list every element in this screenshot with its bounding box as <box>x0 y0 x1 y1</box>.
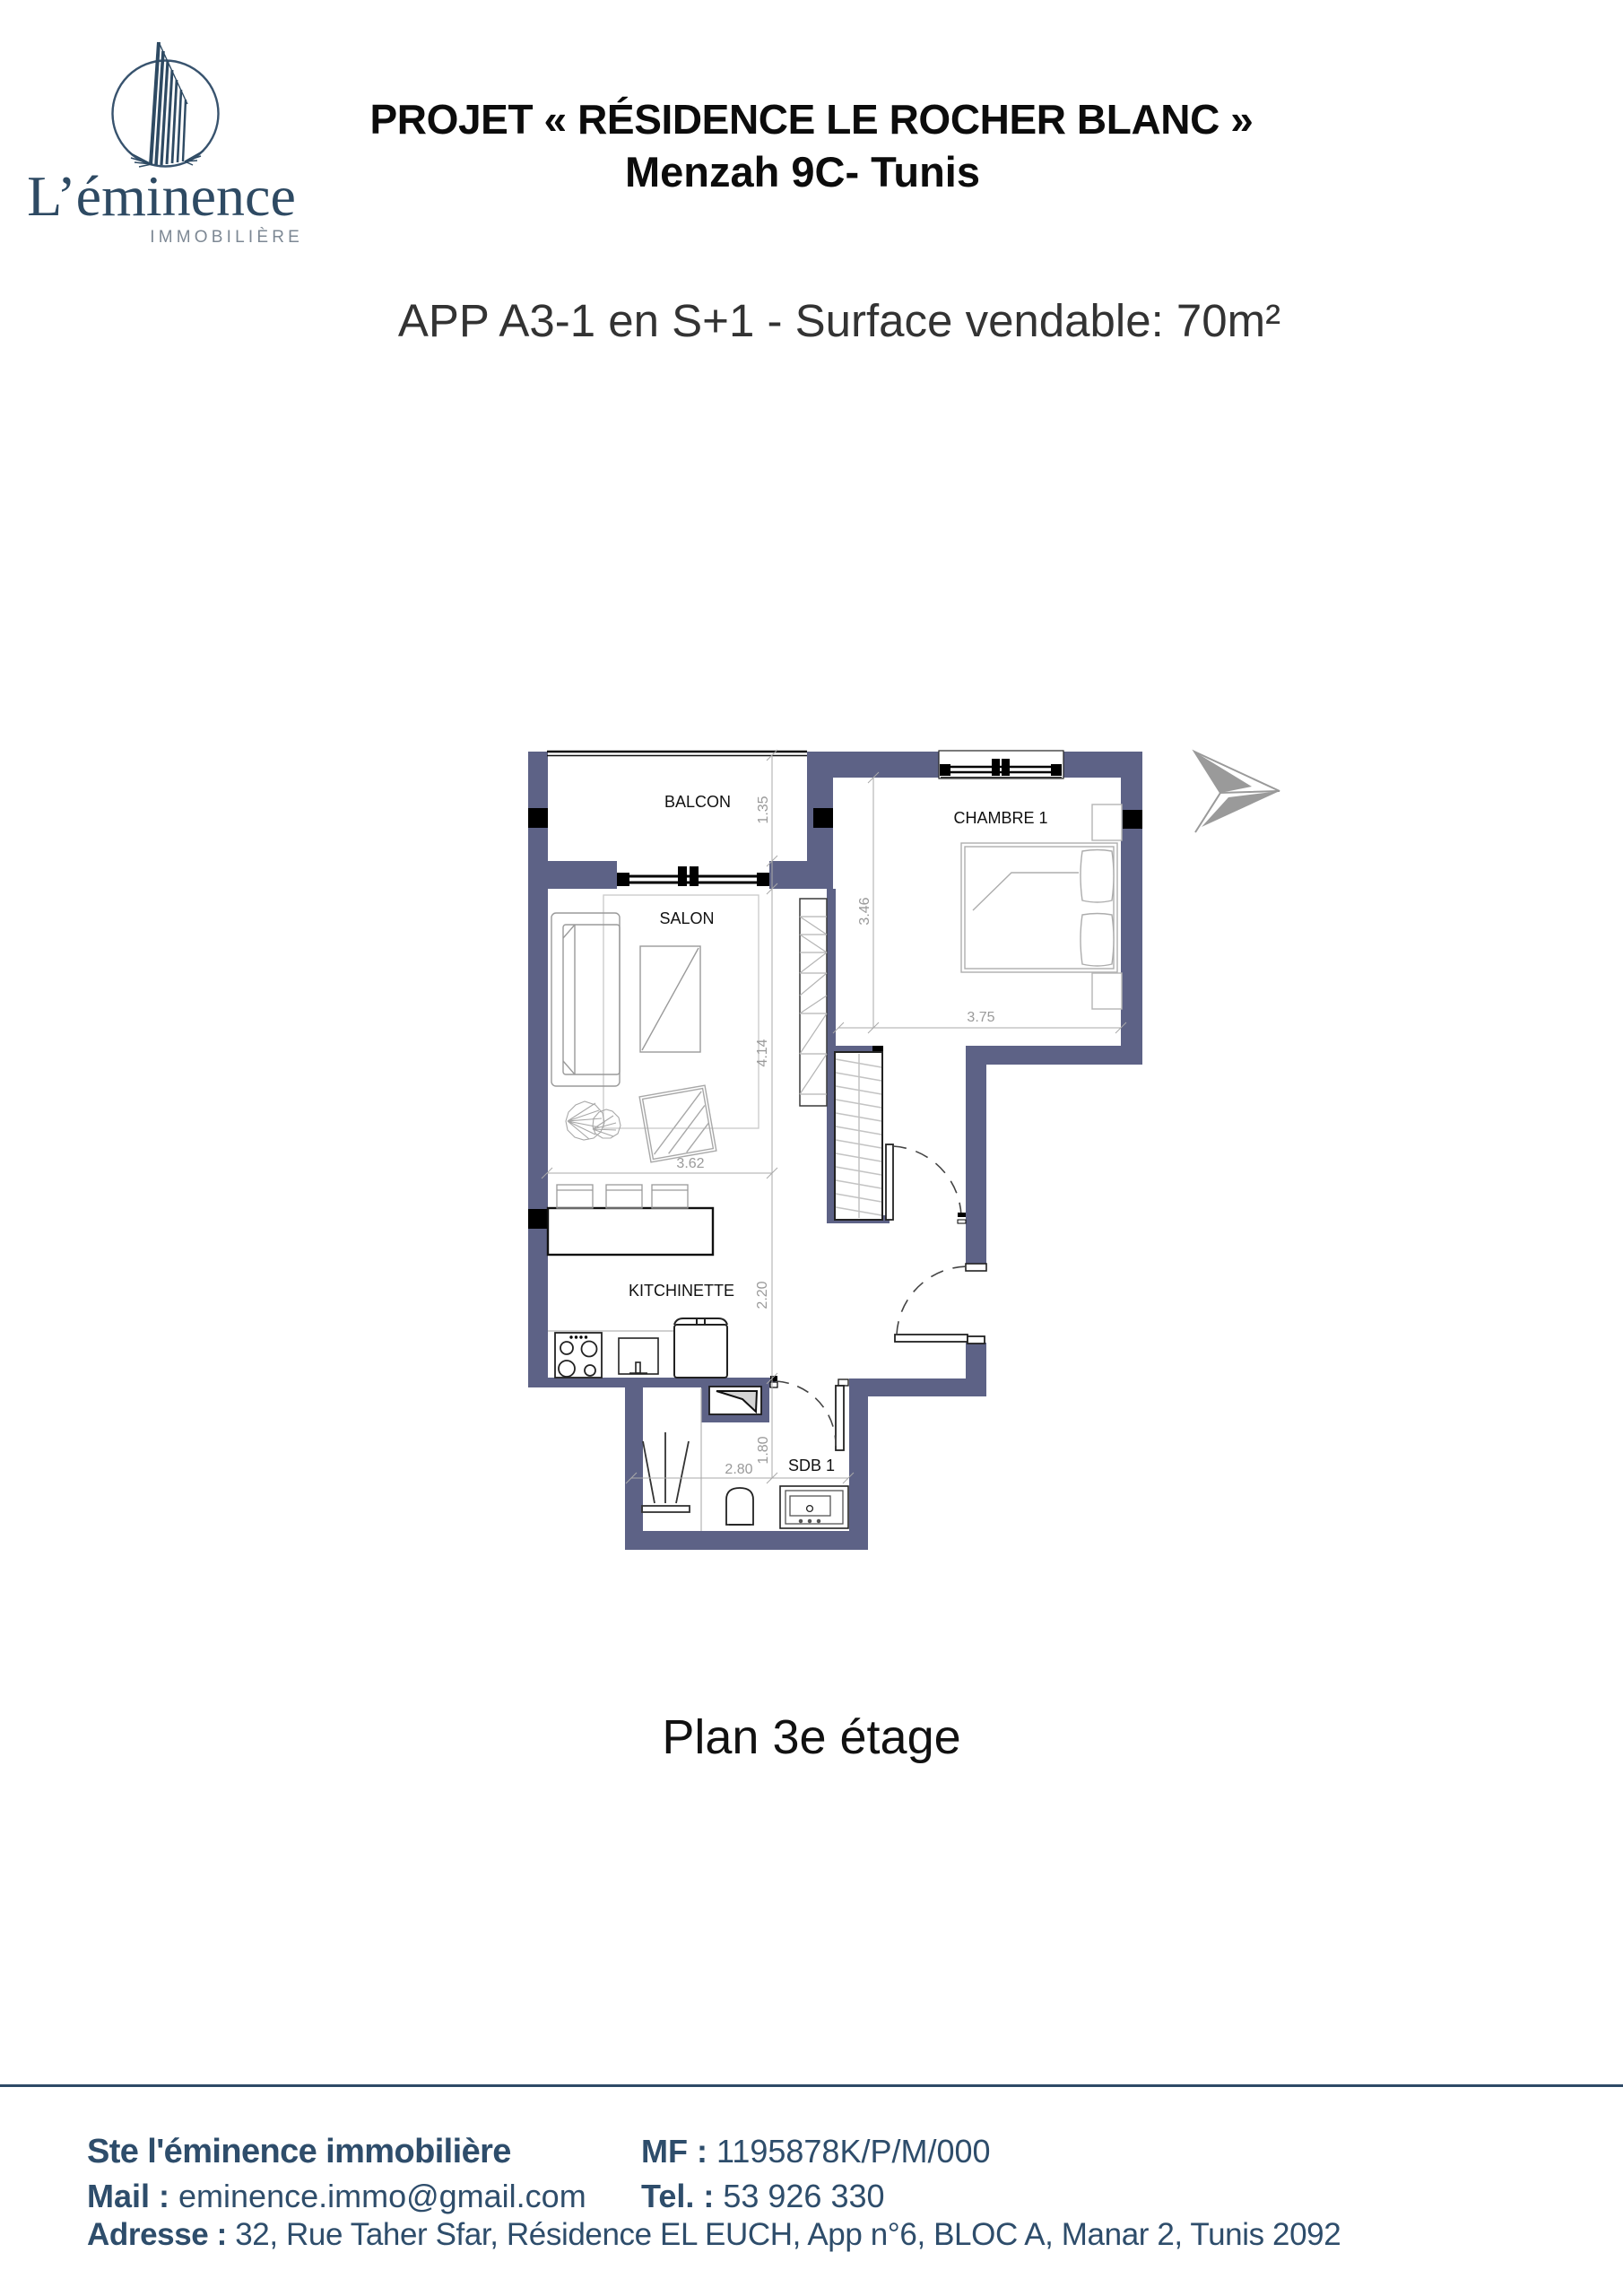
svg-text:3.46: 3.46 <box>857 897 872 925</box>
svg-text:1.80: 1.80 <box>756 1436 771 1464</box>
svg-text:SALON: SALON <box>659 909 714 927</box>
svg-text:3.75: 3.75 <box>967 1010 994 1025</box>
svg-text:2.20: 2.20 <box>755 1281 770 1309</box>
svg-text:1.35: 1.35 <box>756 796 771 823</box>
svg-text:BALCON: BALCON <box>664 793 731 811</box>
svg-text:SDB 1: SDB 1 <box>788 1457 835 1474</box>
svg-text:2.80: 2.80 <box>725 1462 752 1477</box>
svg-text:CHAMBRE 1: CHAMBRE 1 <box>953 809 1047 827</box>
svg-text:4.14: 4.14 <box>755 1039 770 1066</box>
svg-text:KITCHINETTE: KITCHINETTE <box>629 1282 734 1300</box>
svg-text:3.62: 3.62 <box>676 1156 704 1171</box>
